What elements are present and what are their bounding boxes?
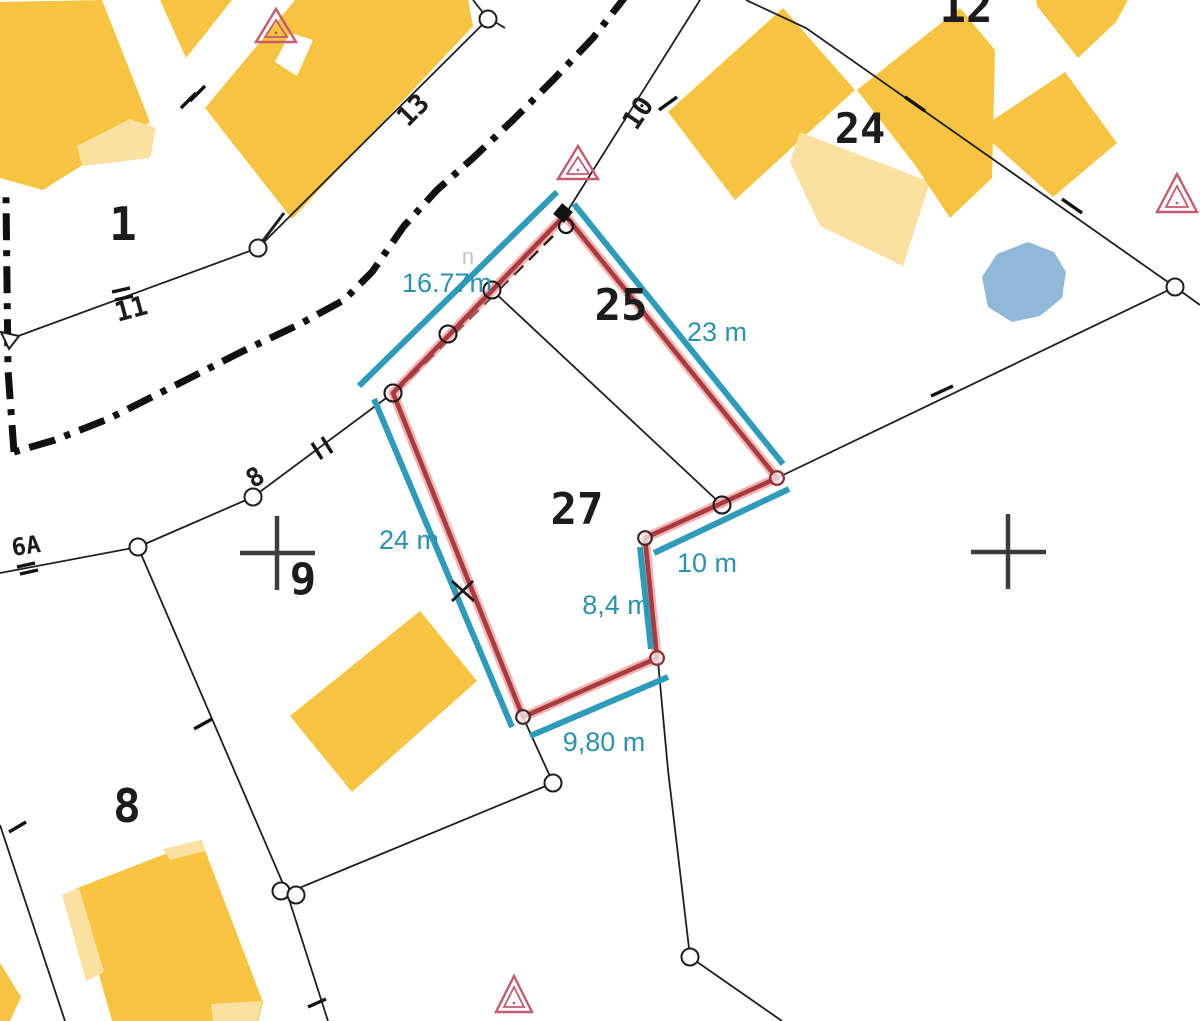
building xyxy=(0,963,21,1021)
building-annex xyxy=(211,1001,262,1021)
measure-label-8-4: 8,4 m xyxy=(582,590,650,620)
measure-line-23 xyxy=(574,204,783,464)
measure-label-10: 10 m xyxy=(677,548,737,578)
building xyxy=(0,0,150,190)
measure-label-9-80: 9,80 m xyxy=(563,727,646,757)
parcel-label-27: 27 xyxy=(551,484,604,535)
warning-triangle-icon xyxy=(1157,174,1197,212)
building xyxy=(1036,0,1128,58)
measure-label-16-77: 16.77m xyxy=(402,268,492,298)
line-label-11: 11 xyxy=(111,290,150,328)
pond xyxy=(982,242,1066,322)
building xyxy=(978,72,1117,197)
boundary-arrow-marker xyxy=(1,332,19,349)
building xyxy=(75,840,263,1021)
measure-label-24: 24 m xyxy=(379,525,439,555)
parcel-label-24: 24 xyxy=(835,104,886,153)
house-number-8: 8 xyxy=(241,461,271,495)
warning-triangle-icon xyxy=(558,146,598,179)
parcel-label-1: 1 xyxy=(109,197,137,251)
cadastral-map: 1 8 9 12 24 25 27 13 11 10 8 6A n 16.77m… xyxy=(0,0,1200,1021)
building xyxy=(290,611,477,792)
parcel-label-9: 9 xyxy=(290,554,317,605)
warning-triangle-icon xyxy=(496,976,532,1012)
measure-label-23: 23 m xyxy=(687,317,747,347)
street-label-6a: 6A xyxy=(10,530,43,562)
building xyxy=(160,0,232,58)
parcel-label-12: 12 xyxy=(940,0,993,33)
parcel-label-8: 8 xyxy=(113,779,141,833)
line-label-10: 10 xyxy=(616,91,660,135)
ghost-text: n xyxy=(462,244,474,269)
parcel-label-25: 25 xyxy=(595,280,648,331)
